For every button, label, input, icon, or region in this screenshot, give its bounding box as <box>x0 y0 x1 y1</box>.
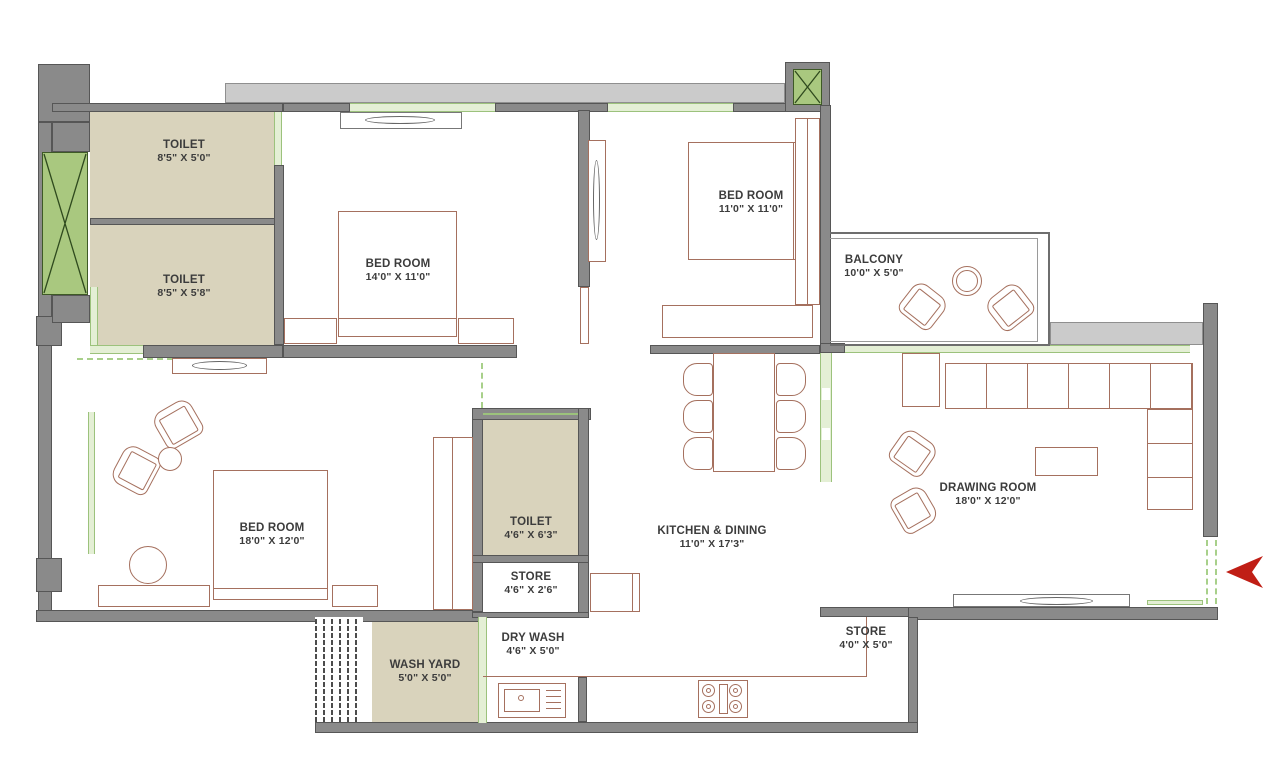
wall <box>143 345 283 358</box>
dining-chair <box>683 400 713 433</box>
room-dims: 11'0" X 11'0" <box>666 203 836 216</box>
room-name: BED ROOM <box>187 522 357 535</box>
dashed-guide <box>481 363 483 408</box>
drainboard-line <box>546 696 561 697</box>
kitchen-counter-edge <box>483 676 867 677</box>
room-label-balcony: BALCONY 10'0" X 5'0" <box>789 254 959 280</box>
sliding-door-lens <box>365 116 435 124</box>
room-dims: 18'0" X 12'0" <box>903 495 1073 508</box>
wall <box>315 722 918 733</box>
stool <box>129 546 167 584</box>
balcony-side-band <box>1050 322 1203 345</box>
bed-fold-line <box>213 588 328 589</box>
bedside-table <box>458 318 514 344</box>
window <box>90 345 143 354</box>
room-name: WASH YARD <box>340 659 510 672</box>
room-name: DRAWING ROOM <box>903 482 1073 495</box>
partition-gap <box>822 428 830 440</box>
room-dims: 8'5" X 5'0" <box>99 152 269 165</box>
room-label-wash-yard: WASH YARD 5'0" X 5'0" <box>340 659 510 685</box>
coffee-table <box>1035 447 1098 476</box>
bed-fold-line <box>338 318 457 319</box>
sofa <box>1147 409 1193 510</box>
partition-gap <box>822 388 830 400</box>
room-label-dry-wash: DRY WASH 4'6" X 5'0" <box>448 632 618 658</box>
room-label-kitchen-dining: KITCHEN & DINING 11'0" X 17'3" <box>627 525 797 551</box>
room-label-store-b: STORE 4'0" X 5'0" <box>781 626 951 652</box>
floor-plan: TOILET 8'5" X 5'0" TOILET 8'5" X 5'8" BE… <box>0 0 1287 768</box>
wall <box>52 295 90 323</box>
wall <box>52 103 283 112</box>
dining-chair <box>776 363 806 396</box>
room-label-drawing-room: DRAWING ROOM 18'0" X 12'0" <box>903 482 1073 508</box>
room-label-bedroom-c: BED ROOM 18'0" X 12'0" <box>187 522 357 548</box>
room-name: BED ROOM <box>313 258 483 271</box>
armchair <box>108 442 163 498</box>
wall <box>495 103 608 112</box>
room-name: TOILET <box>99 274 269 287</box>
window-sill <box>1147 600 1203 605</box>
refrigerator-line <box>632 573 633 612</box>
room-dims: 4'0" X 5'0" <box>781 639 951 652</box>
top-exterior-band <box>225 83 785 103</box>
wall <box>472 555 589 563</box>
room-dims: 4'6" X 5'0" <box>448 645 618 658</box>
drainboard-line <box>546 702 561 703</box>
armchair <box>150 396 206 452</box>
wall <box>908 607 1218 620</box>
window <box>350 103 495 112</box>
wall <box>820 607 910 617</box>
sofa <box>945 363 1193 409</box>
room-label-toilet-a: TOILET 8'5" X 5'0" <box>99 139 269 165</box>
room-name: STORE <box>781 626 951 639</box>
kitchen-partition <box>820 353 832 482</box>
room-name: BED ROOM <box>666 190 836 203</box>
room-label-toilet-b: TOILET 8'5" X 5'8" <box>99 274 269 300</box>
room-dims: 18'0" X 12'0" <box>187 535 357 548</box>
room-label-toilet-c: TOILET 4'6" X 6'3" <box>446 516 616 542</box>
bedside-bench <box>98 585 210 607</box>
faucet <box>518 695 524 701</box>
wall <box>90 218 278 225</box>
entry-door-gap <box>1215 540 1217 604</box>
room-dims: 5'0" X 5'0" <box>340 672 510 685</box>
dining-chair <box>776 400 806 433</box>
room-name: TOILET <box>99 139 269 152</box>
room-label-bedroom-a: BED ROOM 14'0" X 11'0" <box>313 258 483 284</box>
wall <box>472 612 589 618</box>
wall <box>36 558 62 592</box>
mirror-lens <box>192 361 247 370</box>
entry-sill-lens <box>1020 597 1093 605</box>
wall <box>283 345 517 358</box>
window <box>608 103 733 112</box>
wall <box>578 677 587 722</box>
window <box>845 345 1190 353</box>
lift-shaft <box>42 152 88 295</box>
burner <box>702 700 715 713</box>
room-name: TOILET <box>446 516 616 529</box>
room-name: DRY WASH <box>448 632 618 645</box>
wall <box>36 610 483 622</box>
dining-chair <box>683 437 713 470</box>
door-leaf <box>580 287 589 344</box>
chest <box>662 305 813 338</box>
drainboard-line <box>546 690 561 691</box>
bedside-bench <box>332 585 378 607</box>
room-dims: 10'0" X 5'0" <box>789 267 959 280</box>
wall <box>52 122 90 152</box>
window <box>88 412 95 554</box>
room-label-store-a: STORE 4'6" X 2'6" <box>446 571 616 597</box>
window-sill <box>483 413 578 415</box>
room-dims: 4'6" X 6'3" <box>446 529 616 542</box>
room-dims: 8'5" X 5'8" <box>99 287 269 300</box>
dining-chair <box>683 363 713 396</box>
dining-table <box>713 353 775 472</box>
wall <box>733 103 790 112</box>
room-label-bedroom-b: BED ROOM 11'0" X 11'0" <box>666 190 836 216</box>
room-dims: 11'0" X 17'3" <box>627 538 797 551</box>
wall <box>283 103 350 112</box>
room-name: KITCHEN & DINING <box>627 525 797 538</box>
toilet-1-floor <box>90 112 278 218</box>
mirror-lens <box>593 160 600 240</box>
dining-chair <box>776 437 806 470</box>
side-table <box>158 447 182 471</box>
wall <box>1203 303 1218 537</box>
burner <box>729 700 742 713</box>
wall <box>274 165 284 345</box>
duct-shaft <box>793 69 822 105</box>
side-unit <box>902 353 940 407</box>
room-name: STORE <box>446 571 616 584</box>
room-name: BALCONY <box>789 254 959 267</box>
entry-door-gap <box>1206 540 1208 604</box>
entry-arrow-icon <box>1226 556 1264 588</box>
room-dims: 4'6" X 2'6" <box>446 584 616 597</box>
room-dims: 14'0" X 11'0" <box>313 271 483 284</box>
burner <box>702 684 715 697</box>
bedside-table <box>284 318 337 344</box>
wall <box>38 64 90 122</box>
stove-center <box>719 684 728 714</box>
window <box>90 287 98 345</box>
drainboard-line <box>546 708 561 709</box>
window <box>274 112 282 165</box>
burner <box>729 684 742 697</box>
armchair <box>886 426 941 480</box>
